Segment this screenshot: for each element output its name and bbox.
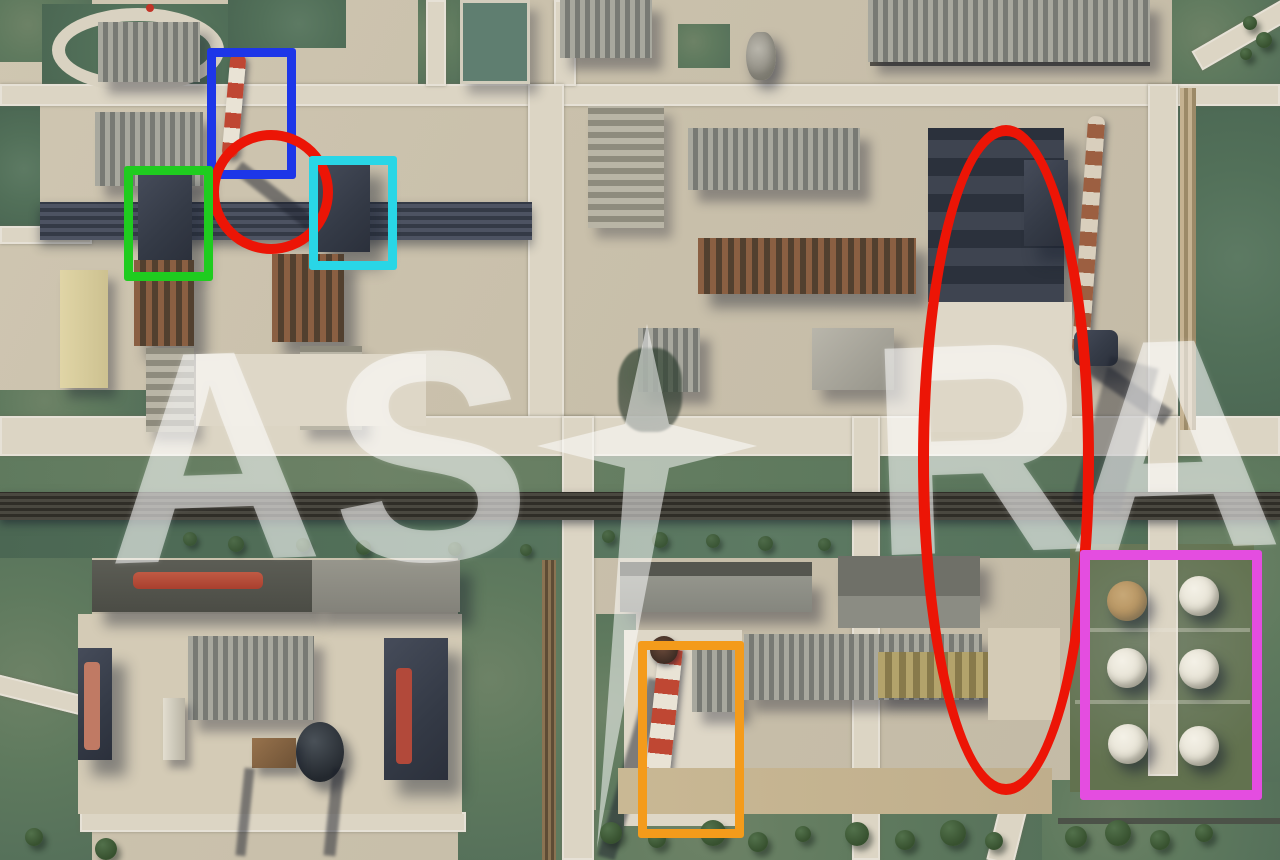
road-horizontal-bottom xyxy=(80,812,466,832)
process-unit xyxy=(98,22,200,82)
tree xyxy=(1195,824,1213,842)
bush xyxy=(818,538,831,551)
annotation-red-ellipse xyxy=(918,125,1094,795)
process-unit xyxy=(560,0,652,58)
brown-equipment-box xyxy=(252,738,296,768)
tree xyxy=(985,832,1003,850)
tree xyxy=(1105,820,1131,846)
red-equipment-dot xyxy=(146,4,154,12)
watermark-letter: A xyxy=(99,302,326,609)
salmon-stripe xyxy=(396,668,412,764)
grass-patch xyxy=(0,106,40,232)
road-vertical xyxy=(426,0,446,86)
tree xyxy=(25,828,43,846)
tree xyxy=(895,830,915,850)
tree xyxy=(1256,32,1272,48)
tree xyxy=(795,826,811,842)
fin-fan-cooler-bank xyxy=(588,106,664,228)
dark-building xyxy=(384,638,448,780)
road-horizontal-top xyxy=(0,84,1280,106)
annotation-orange-rectangle xyxy=(638,641,744,838)
grass-patch xyxy=(228,0,346,48)
satellite-image: A S R A xyxy=(0,0,1280,860)
tree xyxy=(1243,16,1257,30)
tree xyxy=(1065,826,1087,848)
bush xyxy=(758,536,773,551)
watermark-letter: S xyxy=(325,303,535,610)
exchanger-row xyxy=(688,128,860,190)
salmon-stripe xyxy=(84,662,100,750)
teal-roof-building xyxy=(460,0,530,84)
tree xyxy=(95,838,117,860)
round-tank xyxy=(746,32,776,80)
pipe-line xyxy=(1058,818,1280,824)
tree xyxy=(1150,830,1170,850)
annotation-green-rectangle xyxy=(124,166,213,281)
annotation-magenta-rectangle xyxy=(1080,550,1262,800)
grass-patch xyxy=(678,24,730,68)
equipment-rows xyxy=(868,0,1150,62)
light-tower xyxy=(163,698,185,760)
tree xyxy=(845,822,869,846)
annotation-cyan-rectangle xyxy=(309,156,397,270)
column-cluster xyxy=(188,636,314,720)
tree xyxy=(1240,48,1252,60)
tree xyxy=(940,820,966,846)
